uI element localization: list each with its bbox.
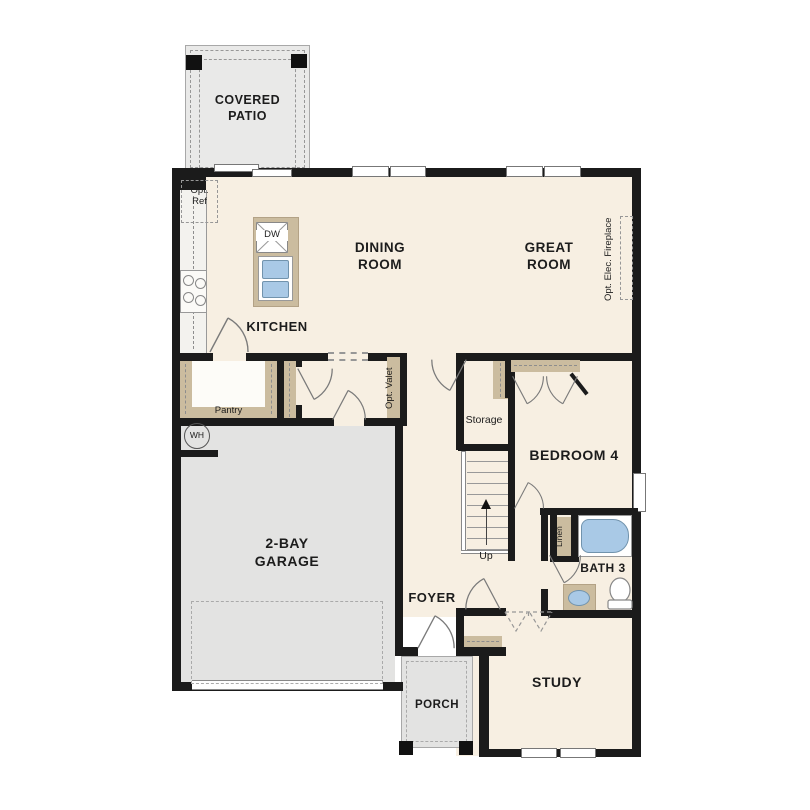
door-bath3 <box>547 552 583 586</box>
window-dining-1 <box>352 166 389 177</box>
patio-post-left <box>186 55 202 70</box>
coat-closet-shelf-dash <box>467 641 499 642</box>
great-room-label: GREAT ROOM <box>499 240 599 274</box>
wall <box>548 610 638 618</box>
pantry-shelf-dash <box>271 364 272 414</box>
door-bedroom4-closet-right <box>545 370 579 410</box>
patio-post-right <box>291 54 307 68</box>
pantry-label: Pantry <box>192 406 265 417</box>
storage-shelf-dash <box>500 363 501 397</box>
up-label: Up <box>472 550 500 562</box>
dining-room-label: DINING ROOM <box>330 240 430 274</box>
fireplace-label: Opt. Elec. Fireplace <box>604 198 615 320</box>
burner-2 <box>195 278 206 289</box>
window-study-1 <box>521 748 557 758</box>
wall <box>479 652 489 757</box>
wall <box>364 418 403 426</box>
burner-1 <box>183 275 194 286</box>
door-garage-entry <box>331 386 367 424</box>
door-front <box>415 612 457 652</box>
porch-post-right <box>459 741 473 755</box>
wall <box>395 426 403 656</box>
bedroom4-closet-shelf-dash <box>514 365 577 366</box>
wall <box>479 749 522 757</box>
garage-apron-dashed <box>191 601 383 684</box>
door-bedroom4-closet-left <box>511 370 545 410</box>
dishwasher-label: DW <box>256 230 288 241</box>
foyer-label: FOYER <box>392 590 472 606</box>
wall <box>540 508 638 515</box>
door-bedroom4 <box>513 477 545 514</box>
covered-patio-label: COVERED PATIO <box>185 93 310 124</box>
study-label: STUDY <box>497 674 617 692</box>
bathtub <box>581 519 629 553</box>
door-mudroom-west <box>296 364 334 404</box>
water-heater-label: WH <box>184 431 210 441</box>
vanity-sink <box>568 590 590 606</box>
bedroom4-label: BEDROOM 4 <box>504 447 644 465</box>
pantry-floor <box>192 361 265 407</box>
porch-label: PORCH <box>401 698 473 712</box>
wall <box>180 450 218 457</box>
opt-valet-label: Opt. Valet <box>385 360 396 416</box>
door-coat-closet <box>464 574 502 614</box>
wall <box>246 353 328 361</box>
up-arrow-head <box>481 499 491 509</box>
up-arrow-line <box>486 509 487 545</box>
cased-opening-dashed <box>328 352 368 361</box>
study-french-doors-dashed <box>504 610 554 636</box>
storage-label: Storage <box>460 414 508 426</box>
window-dining-2 <box>390 166 426 177</box>
fireplace-dashed-box <box>620 216 633 300</box>
wall <box>456 647 480 656</box>
wall <box>277 353 284 426</box>
wall <box>400 353 407 426</box>
burner-3 <box>183 292 194 303</box>
cabinet-strip-dash <box>289 363 290 417</box>
window-great-1 <box>506 166 543 177</box>
patio-slider-door-2 <box>252 169 292 177</box>
cabinet-strip <box>284 361 296 419</box>
door-hallway <box>430 356 468 394</box>
door-pantry <box>208 314 250 356</box>
wall <box>595 749 641 757</box>
toilet <box>606 577 634 611</box>
sink-basin-2 <box>262 281 289 298</box>
sink-basin-1 <box>262 260 289 279</box>
window-study-2 <box>560 748 596 758</box>
window-great-2 <box>544 166 581 177</box>
window-bedroom4 <box>633 473 646 512</box>
burner-4 <box>195 295 206 306</box>
opt-ref-label: Opt. Ref <box>181 186 218 208</box>
floor-plan: COVERED PATIO Opt. Ref DW KITCHEN DINING… <box>0 0 810 810</box>
garage-label: 2-BAY GARAGE <box>217 535 357 570</box>
pantry-shelf-dash <box>185 364 186 414</box>
porch-post-left <box>399 741 413 755</box>
linen-label: Linen <box>555 519 565 554</box>
stair-rail <box>461 451 466 551</box>
